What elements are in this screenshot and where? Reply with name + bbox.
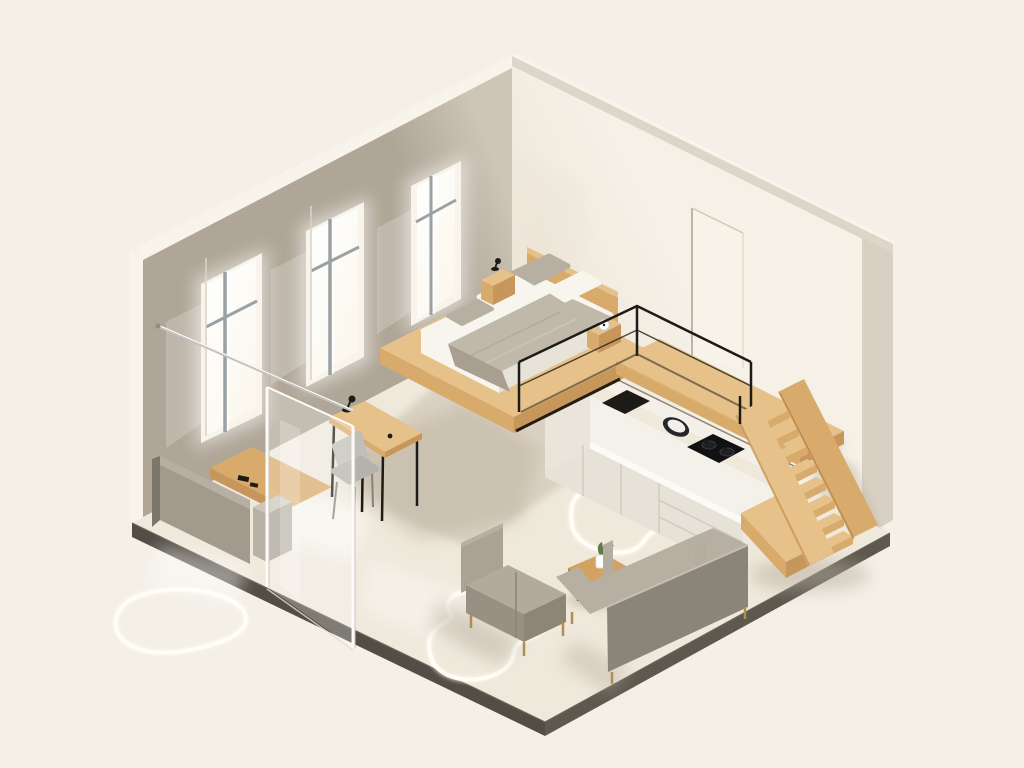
- room-scene: [0, 0, 1024, 768]
- isometric-room-illustration: [0, 0, 1024, 768]
- window-3: [405, 155, 467, 332]
- door-outline: [692, 208, 743, 368]
- desk-knob: [388, 434, 393, 439]
- window-2: [300, 196, 370, 393]
